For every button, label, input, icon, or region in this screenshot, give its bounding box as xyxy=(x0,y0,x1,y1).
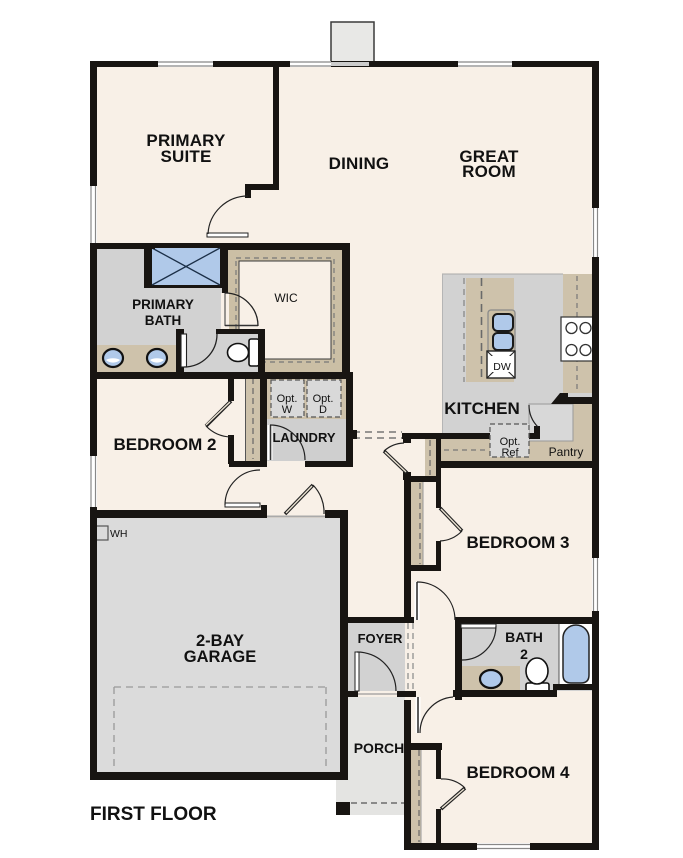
svg-text:ROOM: ROOM xyxy=(462,162,516,181)
svg-text:D: D xyxy=(319,404,327,416)
svg-text:Pantry: Pantry xyxy=(549,445,584,459)
svg-text:DINING: DINING xyxy=(329,154,390,173)
svg-text:BATH: BATH xyxy=(145,313,182,328)
svg-text:W: W xyxy=(282,404,293,416)
svg-text:FOYER: FOYER xyxy=(358,631,403,646)
svg-text:Ref: Ref xyxy=(501,447,519,459)
svg-text:BEDROOM 2: BEDROOM 2 xyxy=(114,435,217,454)
svg-text:PRIMARY: PRIMARY xyxy=(132,297,194,312)
svg-text:LAUNDRY: LAUNDRY xyxy=(272,430,335,445)
svg-text:WH: WH xyxy=(110,528,128,540)
svg-text:BEDROOM 3: BEDROOM 3 xyxy=(467,533,570,552)
svg-text:GARAGE: GARAGE xyxy=(184,648,256,666)
svg-text:BATH: BATH xyxy=(505,629,543,645)
svg-text:KITCHEN: KITCHEN xyxy=(444,399,520,418)
svg-text:FIRST FLOOR: FIRST FLOOR xyxy=(90,804,217,825)
svg-text:SUITE: SUITE xyxy=(160,147,211,166)
svg-text:2: 2 xyxy=(520,646,528,662)
svg-text:DW: DW xyxy=(493,361,511,373)
svg-text:PORCH: PORCH xyxy=(354,740,405,756)
svg-text:BEDROOM 4: BEDROOM 4 xyxy=(467,763,571,782)
svg-text:WIC: WIC xyxy=(274,291,298,305)
